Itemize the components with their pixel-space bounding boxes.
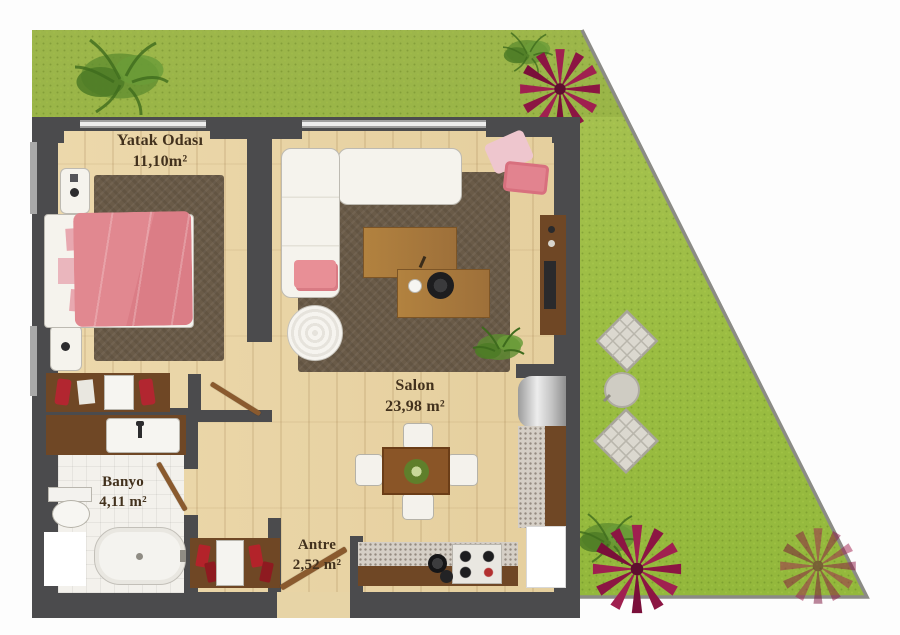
room-area: 23,98 m² — [350, 397, 480, 418]
fridge — [518, 376, 566, 428]
living-window — [302, 120, 486, 128]
hall-mirror — [216, 540, 244, 586]
left-window-accent — [30, 142, 37, 214]
bathtub-faucet-icon — [180, 550, 186, 562]
faucet-icon — [138, 424, 142, 438]
throw-pillow — [503, 161, 550, 195]
room-area: 2,52 m² — [252, 556, 382, 576]
room-label-bath: Banyo 4,11 m² — [58, 473, 188, 512]
kitchen-cabinet-right — [545, 426, 566, 528]
pot-icon — [440, 570, 453, 583]
sofa-cushion — [294, 260, 336, 288]
decor-item — [70, 174, 78, 182]
dresser-item — [77, 379, 95, 405]
speaker-icon — [548, 240, 555, 247]
dresser-mirror — [104, 375, 134, 410]
cup-icon — [408, 279, 422, 293]
bedroom-window — [80, 120, 206, 128]
dining-chair — [447, 454, 478, 486]
wall-bedroom-east — [247, 130, 272, 342]
bowl-icon — [427, 272, 454, 299]
side-table — [287, 305, 343, 361]
lamp-icon — [61, 342, 70, 351]
shower-niche — [44, 532, 86, 586]
left-window-accent — [30, 326, 37, 396]
indoor-plant-icon — [468, 322, 530, 372]
room-label-bedroom: Yatak Odası 11,10m² — [85, 131, 235, 173]
room-name: Antre — [252, 536, 382, 556]
wall-bottom-left — [32, 592, 277, 618]
dining-chair — [403, 423, 433, 450]
wall-bath-east-upper — [184, 417, 198, 469]
bathtub-drain-icon — [136, 553, 143, 560]
room-area: 4,11 m² — [58, 493, 188, 513]
room-name: Yatak Odası — [85, 131, 235, 152]
kitchen-door-opening — [526, 526, 566, 588]
room-name: Salon — [350, 376, 480, 397]
floorplan-canvas: Yatak Odası 11,10m² Salon 23,98 m² Banyo… — [0, 0, 900, 635]
room-label-living: Salon 23,98 m² — [350, 376, 480, 418]
wall-bottom-right — [350, 592, 580, 618]
entrance-threshold — [277, 592, 350, 618]
dining-chair — [355, 454, 383, 486]
room-label-hall: Antre 2,52 m² — [252, 536, 382, 575]
stove — [452, 544, 502, 584]
plate-icon — [404, 459, 429, 484]
dining-chair — [402, 493, 434, 520]
bed-duvet — [73, 211, 193, 327]
tv-icon — [544, 261, 556, 309]
sofa-chaise — [338, 148, 462, 205]
room-area: 11,10m² — [85, 152, 235, 173]
speaker-icon — [548, 226, 555, 233]
lamp-icon — [70, 188, 79, 197]
faucet-icon — [136, 421, 144, 426]
room-name: Banyo — [58, 473, 188, 493]
